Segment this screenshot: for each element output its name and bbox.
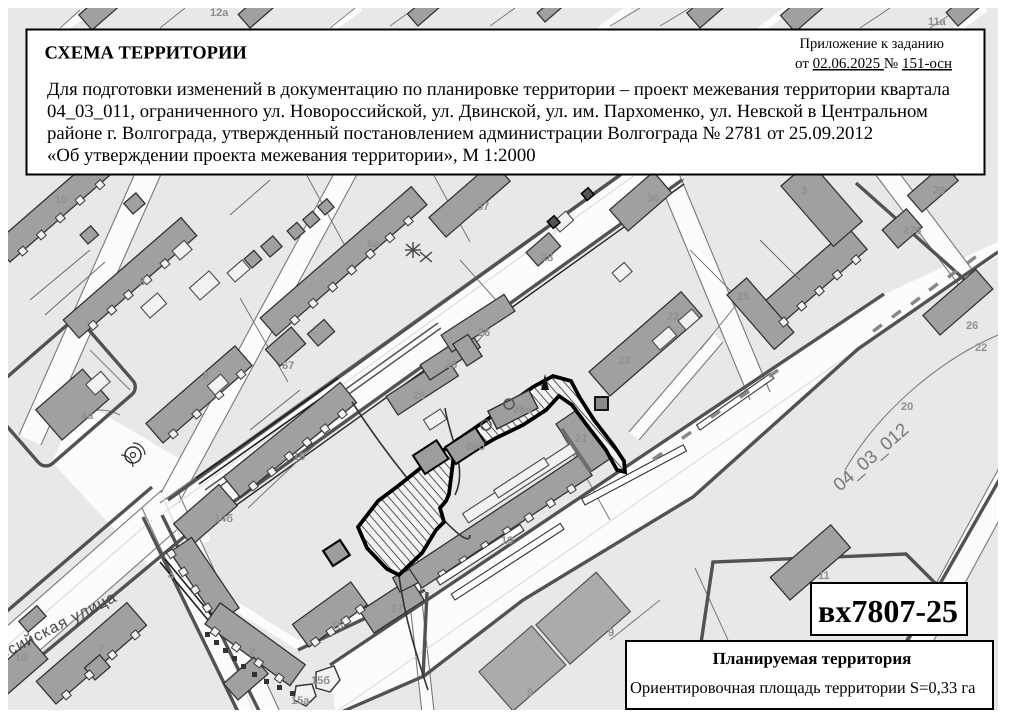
svg-text:15: 15 — [331, 620, 343, 632]
svg-text:19: 19 — [501, 535, 513, 547]
svg-text:15a: 15a — [291, 695, 310, 707]
svg-text:9: 9 — [527, 687, 533, 699]
svg-text:Для подготовки изменений в до: Для подготовки изменений в документацию … — [47, 79, 951, 100]
svg-text:04_03_011, ограниченного ул. Н: 04_03_011, ограниченного ул. Новороссийс… — [47, 101, 928, 122]
svg-text:17: 17 — [391, 603, 403, 615]
svg-text:7: 7 — [98, 643, 104, 655]
svg-text:276: 276 — [903, 225, 921, 237]
svg-text:вх7807-25: вх7807-25 — [818, 593, 958, 629]
svg-text:28: 28 — [541, 252, 553, 264]
svg-text:23: 23 — [618, 355, 630, 367]
svg-text:11: 11 — [818, 570, 830, 582]
svg-text:26в: 26в — [513, 404, 532, 416]
svg-text:«Об утверждении проекта межева: «Об утверждении проекта межевания террит… — [47, 145, 536, 166]
svg-text:25: 25 — [737, 291, 749, 303]
svg-text:СХЕМА ТЕРРИТОРИИ: СХЕМА ТЕРРИТОРИИ — [45, 44, 248, 64]
svg-text:3: 3 — [801, 185, 807, 197]
svg-text:29: 29 — [933, 185, 945, 197]
svg-text:26: 26 — [478, 327, 490, 339]
svg-text:16: 16 — [293, 451, 305, 463]
svg-text:8: 8 — [139, 276, 145, 288]
svg-text:9: 9 — [608, 627, 614, 639]
svg-text:Планируемая территория: Планируемая территория — [713, 649, 912, 668]
svg-text:14б: 14б — [214, 513, 233, 525]
svg-text:4: 4 — [168, 570, 175, 582]
svg-text:от 02.06.2025 № 151-осн: от 02.06.2025 № 151-осн — [795, 56, 952, 72]
svg-text:26: 26 — [445, 359, 457, 371]
svg-text:15б: 15б — [311, 675, 330, 687]
svg-text:11a: 11a — [928, 16, 947, 28]
svg-text:Приложение к заданию: Приложение к заданию — [800, 36, 945, 52]
svg-text:22: 22 — [975, 342, 987, 354]
svg-text:67: 67 — [282, 360, 294, 372]
svg-text:21: 21 — [575, 433, 587, 445]
svg-text:23: 23 — [667, 311, 679, 323]
svg-text:Ориентировочная площадь террит: Ориентировочная площадь территории S=0,3… — [630, 678, 976, 697]
svg-text:30: 30 — [647, 193, 659, 205]
svg-text:26б: 26б — [466, 441, 485, 453]
svg-text:районе г. Волгограда, утвержде: районе г. Волгограда, утвержденный поста… — [47, 123, 873, 144]
svg-text:6a: 6a — [367, 238, 380, 250]
svg-text:6: 6 — [203, 370, 209, 382]
svg-text:67: 67 — [477, 201, 489, 213]
svg-text:20: 20 — [901, 401, 913, 413]
svg-text:2: 2 — [249, 646, 255, 658]
svg-text:26: 26 — [966, 320, 978, 332]
svg-text:26: 26 — [413, 390, 425, 402]
svg-text:10: 10 — [55, 194, 67, 206]
svg-text:4a: 4a — [81, 410, 94, 422]
svg-text:12a: 12a — [210, 7, 229, 19]
